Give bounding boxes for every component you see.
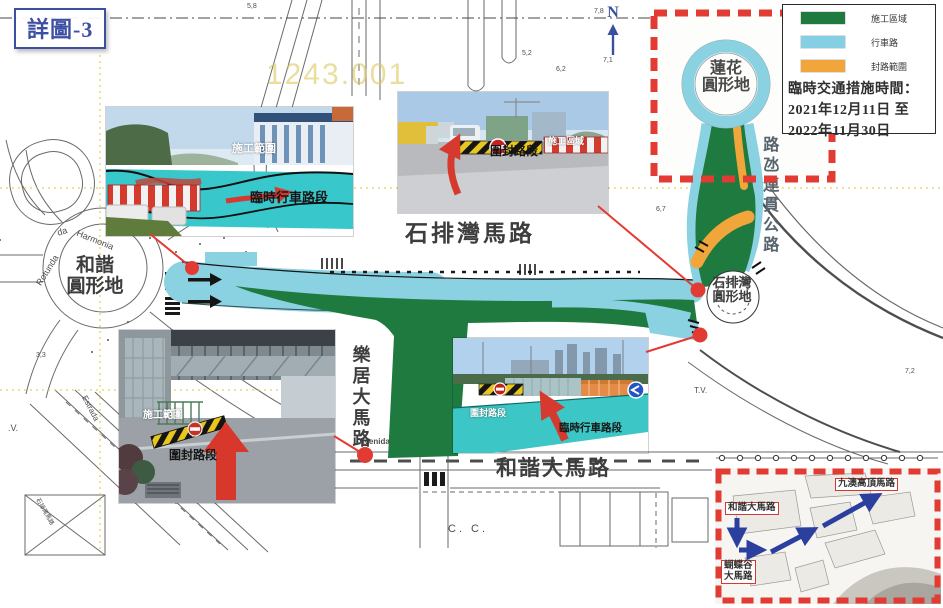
measure-time-to: 2022年11月30日 (788, 120, 935, 140)
route-inset-label-butterfly-valley: 蝴蝶谷 大馬路 (721, 560, 756, 584)
legend-row-construction: 施工區域 (801, 7, 929, 29)
photo4-scene (453, 338, 648, 453)
road-label-harmony-avenue: 和諧大馬路 (496, 457, 611, 480)
photo-inset-closed-road-north: 圍封路段 施工區域 (398, 92, 608, 213)
photo4-temp-lane-label: 臨時行車路段 (559, 420, 622, 435)
traffic-plan-canvas: 7,87,15,85,26,26,36,77,24,33,3T.V..V.C. … (0, 0, 943, 608)
photo1-temp-lane-label: 臨時行車路段 (250, 187, 328, 206)
legend-row-closure: 封路範圍 (801, 55, 929, 77)
photo1-scene (106, 107, 353, 236)
route-inset-label-harmony-avenue: 和諧大馬路 (725, 502, 779, 515)
road-label-seac-pai-van-road: 石排灣馬路 (405, 222, 535, 247)
north-label: N (605, 4, 621, 22)
photo2-closed-label: 圍封路段 (490, 142, 538, 159)
route-inset-label-kau-o-road: 九澳高頂馬路 (835, 478, 898, 491)
photo-inset-closed-road-south: 施工範圍 圍封路段 (119, 330, 335, 503)
legend-swatch-closure (801, 60, 845, 72)
legend-swatch-construction (801, 12, 845, 24)
photo4-closed-label: 圍封路段 (470, 406, 506, 419)
legend-label-closure: 封路範圍 (871, 60, 907, 73)
photo2-construction-label: 施工區域 (548, 134, 584, 147)
photo-inset-temporary-lane-south: 圍封路段 臨時行車路段 (453, 338, 648, 453)
photo3-construction-label: 施工範圍 (143, 406, 183, 421)
legend-swatch-carriageway (801, 36, 845, 48)
photo-inset-temporary-lane-west: 施工範圍 臨時行車路段 (106, 107, 353, 236)
measure-time-heading: 臨時交通措施時間： (788, 78, 935, 98)
legend-row-carriageway: 行車路 (801, 31, 929, 53)
photo1-construction-label: 施工範圍 (232, 140, 276, 156)
roundabout-label-harmony: 和諧 圓形地 (52, 256, 138, 297)
drawing-number-watermark: 1243.001 (266, 58, 407, 92)
legend-panel: 施工區域 行車路 封路範圍 臨時交通措施時間： 2021年12月11日 至 20… (782, 4, 936, 134)
photo3-closed-label: 圍封路段 (169, 446, 217, 463)
road-label-cotai-highway: 路氹連貫公路 (760, 136, 777, 256)
north-indicator: N (605, 4, 621, 56)
legend-label-carriageway: 行車路 (871, 36, 898, 49)
road-label-lok-kui-avenue: 樂居大馬路 (350, 345, 369, 450)
page-title: 詳圖-3 (14, 8, 106, 49)
diversion-route-inset: 和諧大馬路 九澳高頂馬路 蝴蝶谷 大馬路 (715, 468, 941, 604)
roundabout-label-seac-pai-van: 石排灣 圓形地 (702, 276, 762, 304)
roundabout-label-lotus: 蓮花 圓形地 (694, 60, 758, 95)
measure-time-from: 2021年12月11日 至 (788, 99, 935, 119)
legend-label-construction: 施工區域 (871, 12, 907, 25)
north-arrow-icon (605, 22, 621, 56)
